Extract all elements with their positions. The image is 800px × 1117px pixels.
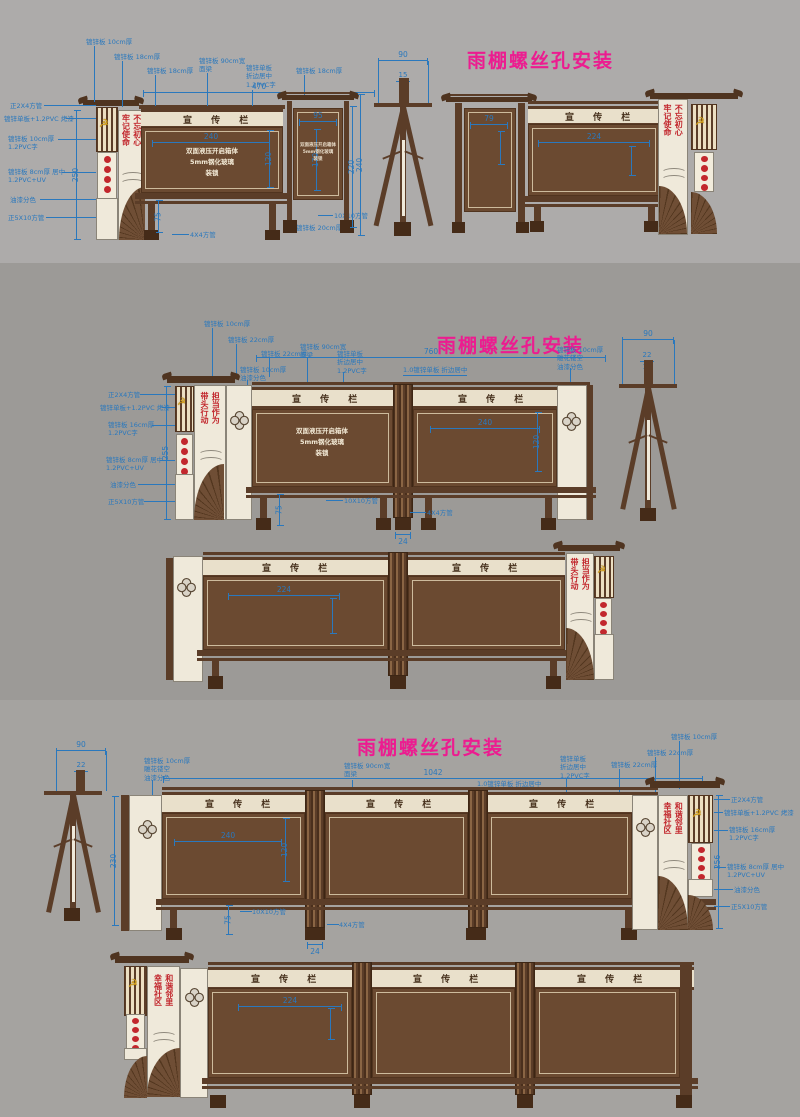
clover-icon [185,988,204,1007]
slogan-col-right: 担当作为 [581,558,590,590]
pillar-clover [129,795,162,931]
dim-extension [106,751,107,791]
board-header-text: 宣 传 栏 [251,972,324,985]
panel-inner-border [329,817,464,895]
pillar-striped [594,556,614,598]
leader-line [240,911,252,912]
leg [380,498,387,518]
board-header-text: 宣 传 栏 [183,113,256,126]
foot [354,1095,370,1108]
clover-icon [636,818,655,837]
slogan-col-right: 和谐邻里 [674,802,683,834]
label-material: 镀锌单板+1.2PVC 烤漆 [100,404,170,412]
board-panel [535,988,680,1078]
leader-line [410,512,426,513]
leader-line [714,889,733,890]
foot [166,928,182,940]
clover-icon [177,578,196,597]
label-material: 镀锌板 10cm厚 雕花镂空 油漆分色 [144,757,190,782]
leader-line [207,73,208,106]
foot [530,221,544,232]
leader-line [714,799,730,800]
seal-dot [104,176,111,183]
label-material: 油漆分色 [10,196,36,204]
label-material: 镀锌单板+1.2PVC 烤漆 [4,115,74,123]
seal-dot [104,186,111,193]
leader-line [307,357,308,382]
wave-decor [568,619,594,629]
dim-extension [428,61,429,103]
panel-inner-border [207,580,384,646]
foot [395,518,411,530]
foot [305,928,325,940]
bottom-rail [202,1078,698,1084]
dim-224: 224 [238,1006,342,1007]
pillar-striped [124,966,147,1016]
label-material: 镀锌单板 折边居中 1.2PVC字 [337,350,367,375]
foot [64,908,80,921]
foot [676,1095,692,1108]
panel-inner-border [376,992,511,1074]
label-material: 镀锌板 20cm厚 [296,224,342,232]
board-header-text: 宣 传 栏 [458,392,531,405]
divider-column [515,962,535,1095]
board-panel [487,813,632,899]
post [121,795,129,931]
leg [534,207,541,222]
foot [546,676,561,689]
leader-line [40,199,96,200]
board-header-text: 宣 传 栏 [565,110,638,123]
slogan-text: 带头行动 担当作为 [196,392,224,424]
dim-90: 90 [378,60,428,61]
foot [283,220,297,233]
leader-line [122,61,123,107]
leg [260,498,267,518]
box-spec-text-small: 双面液压开启箱体 5mm钢化玻璃 装锁 [297,142,339,164]
top-beam [162,787,658,790]
dim-255: 255 [166,386,167,520]
leg [269,204,276,230]
wave-decor [661,867,687,877]
leg [212,661,219,676]
label-material: 镀锌单板 折边居中 1.2PVC字 [560,755,590,780]
bottom-rail [135,193,289,199]
label-material: 4X4方管 [339,921,365,929]
dim-79: 79 [470,124,508,125]
dim-220: 220 [352,106,353,228]
label-material: 油漆分色 [734,886,760,894]
label-material: 镀锌板 90cm宽 面梁 [199,57,245,74]
label-material: 镀锌板 10cm厚 [204,320,250,328]
dim-24: 24 [395,534,411,535]
panel-inner-border [212,992,348,1074]
pillar-clover [557,385,587,520]
label-material: 正2X4方管 [10,102,42,110]
roof [167,376,235,383]
dim-1042: 1042 [163,778,703,779]
leader-line [62,172,96,173]
label-material: 正5X10方管 [8,214,44,222]
dim-240: 240 [174,841,282,842]
party-emblem-icon: ☭ [177,398,186,408]
seal-column [694,152,714,192]
label-material: 镀锌板 10cm厚 [671,733,717,741]
clover-icon [138,820,157,839]
label-material: 镀锌板 8cm厚 居中 1.2PVC+UV [8,168,65,185]
dim-line [500,131,501,165]
dim-120: 120 [269,130,270,188]
box-spec-text: 双面液压开启箱体 5mm钢化玻璃 装锁 [156,146,268,179]
slogan-col-right: 和谐邻里 [165,974,174,1006]
pillar-clover [173,556,203,682]
pillar-clover [632,795,658,930]
panel-inner-border [468,112,512,208]
leader-line [714,830,728,831]
seal-dot [698,865,705,871]
foot [210,1095,226,1108]
board-header-text: 宣 传 栏 [366,797,439,810]
seal-dot [181,438,188,445]
label-material: 镀锌板 18cm厚 [296,67,342,75]
foot [390,676,406,689]
dim-75: 75 [228,905,229,935]
seal-dot [132,1036,139,1042]
seal-dot [600,611,607,617]
foot [265,230,280,240]
dim-extension [622,340,623,384]
label-material: 镀锌板 22cm厚 [647,749,693,757]
bottom-rail [246,487,596,493]
roof [650,781,720,788]
dim-extension [674,340,675,384]
foot [256,518,271,530]
board-panel [408,576,565,650]
bottom-rail [197,650,573,656]
bottom-rail [523,196,665,202]
leader-line [343,372,344,382]
pillar-striped [175,386,194,432]
slogan-text: 带头行动 担当作为 [568,558,592,590]
dim-extension [56,751,57,791]
slogan-col-left: 带头行动 [570,558,579,590]
board-header-text: 宣 传 栏 [292,392,365,405]
seal-dot [701,165,708,172]
dim-line [330,1008,331,1040]
bottom-shelf [523,204,665,207]
dim-90: 90 [622,339,674,340]
party-emblem-icon: ☭ [597,566,606,576]
slogan-col-left: 带头行动 [200,392,209,424]
leader-line [144,501,175,502]
dim-120: 120 [285,818,286,882]
party-emblem-icon: ☭ [692,808,702,819]
board-header-text: 宣 传 栏 [577,972,650,985]
clover-icon [230,411,249,430]
leader-line [138,484,175,485]
seal-column [97,152,117,200]
panel-inner-border [412,580,561,646]
leader-line [327,924,339,925]
post [166,558,173,680]
roof [282,95,354,100]
dim-120: 120 [537,412,538,472]
seal-dot [698,856,705,862]
label-material: 镀锌板 18cm厚 [147,67,193,75]
label-material: 正5X10方管 [731,903,767,911]
top-beam [252,382,590,385]
board-header-text: 宣 传 栏 [529,797,602,810]
leg [550,661,557,676]
board-header-text: 宣 传 栏 [262,561,335,574]
pillar-clover [226,385,252,520]
leg [648,207,655,222]
seal-dot [132,1027,139,1033]
leg [170,910,177,928]
leader-line [236,344,237,377]
foot [541,518,556,530]
label-material: 正2X4方管 [731,796,763,804]
clover-icon [562,412,581,431]
seal-dot [698,847,705,853]
label-material: 镀锌板 16cm厚 1.2PVC字 [108,421,154,438]
dim-240: 240 [152,142,270,143]
foot [466,928,486,940]
slogan-text: 幸福社区 和谐邻里 [149,974,178,1006]
party-emblem-icon: ☭ [99,118,109,129]
leader-line [252,90,253,106]
slogan-text: 幸福社区 和谐邻里 [660,802,686,834]
slogan-text: 牢记使命 不忘初心 [660,104,686,136]
seal-dot [181,458,188,465]
label-material: 镀锌板 22cm厚 [611,761,657,769]
dim-95: 95 [299,121,337,122]
foot [517,1095,533,1108]
panel-inner-border [491,817,628,895]
dim-240: 240 [430,428,540,429]
roof [446,97,532,102]
dim-line [631,146,632,176]
dim-230: 230 [114,796,115,926]
dim-extension [378,61,379,103]
leader-line [66,118,96,119]
label-material: 镀锌板 8cm厚 居中 1.2PVC+UV [727,863,784,880]
slogan-col-left: 幸福社区 [153,974,162,1006]
dim-75: 75 [279,494,280,526]
slogan-col-left: 牢记使命 [121,114,130,146]
label-material: 10X10方管 [344,497,378,505]
leader-line [58,139,96,140]
leg [545,498,552,518]
label-material: 镀锌板 16cm厚 1.2PVC字 [729,826,775,843]
dim-250: 250 [76,110,77,240]
tripod-inner-pole [647,420,650,500]
roof-trim [450,94,528,96]
pillar-white [688,879,713,897]
post [455,103,462,223]
pillar-white [96,198,118,240]
pillar-white [175,474,194,520]
label-material: 镀锌板 8cm厚 居中 1.2PVC+UV [106,456,163,473]
panel-inner-border [539,992,676,1074]
seal-column [126,1014,145,1052]
foot [516,222,529,233]
leader-line [566,779,567,792]
label-material: 镀锌板 10cm厚 1.2PVC字 [8,135,54,152]
label-material: 镀锌板 90cm宽 面梁 [344,762,390,779]
seal-dot [104,156,111,163]
foot [421,518,436,530]
leader-line [155,75,156,106]
label-material: 4X4方管 [427,509,453,517]
seal-dot [701,184,708,191]
foot [640,508,656,521]
foot [208,676,223,689]
dim-75: 75 [158,200,159,233]
seal-dot [600,620,607,626]
foot [376,518,391,530]
section1-title: 雨棚螺丝孔安装 [467,46,614,73]
party-emblem-icon: ☭ [128,978,138,989]
label-material: 镀锌板 18cm厚 [114,53,160,61]
label-material: 镀锌板 10cm厚 雕花镂空 油漆分色 [557,346,603,371]
dim-24: 24 [307,944,323,945]
label-material: 1.0镀锌单板 折边居中 [403,366,467,374]
roof-trim [286,92,350,94]
leader-line [212,328,213,377]
foot [394,222,411,236]
leader-line [326,500,343,501]
post [287,101,292,221]
label-material: 镀锌板 10cm厚 [86,38,132,46]
board-panel [372,988,515,1078]
tripod-head [399,78,409,103]
leg [625,910,632,928]
bottom-shelf [246,495,596,498]
leader-line [403,375,467,376]
board-panel [325,813,468,899]
seal-dot [600,602,607,608]
slogan-col-left: 幸福社区 [663,802,672,834]
foot [452,222,465,233]
dim-256: 256 [718,795,719,929]
label-material: 镀锌单板 折边居中 1.2PVC字 [246,64,276,89]
leader-line [162,407,175,408]
label-material: 正2X4方管 [108,391,140,399]
seal-dot [104,166,111,173]
party-emblem-icon: ☭ [695,116,705,127]
dim-90: 90 [56,750,106,751]
label-material: 正5X10方管 [108,498,144,506]
roof [115,956,189,963]
dim-240-overall: 240 [360,94,361,236]
bottom-shelf [197,658,573,661]
label-material: 10X10方管 [252,908,286,916]
end-post [680,962,692,1095]
seal-dot [132,1018,139,1024]
board-header-text: 宣 传 栏 [413,972,486,985]
roof [558,545,620,551]
leader-line [44,105,96,106]
seal-column [595,598,612,636]
leader-line [172,234,189,235]
divider-column [352,962,372,1095]
label-material: 镀锌单板+1.2PVC 烤漆 [724,809,794,817]
section3-title: 雨棚螺丝孔安装 [357,733,504,760]
slogan-col-left: 牢记使命 [663,104,672,136]
leader-line [318,215,333,216]
dim-224: 224 [228,595,340,596]
label-material: 4X4方管 [190,231,216,239]
dim-224: 224 [538,142,650,143]
slogan-col-right: 不忘初心 [674,104,683,136]
seal-dot [701,175,708,182]
top-beam [203,552,565,555]
wave-decor [661,175,687,185]
pillar-white [594,634,614,680]
board-header-text: 宣 传 栏 [205,797,278,810]
slogan-col-right: 担当作为 [211,392,220,424]
leader-line [160,460,175,461]
foot [644,221,658,232]
blueprint-canvas: 雨棚螺丝孔安装 ☭ 牢记使命 不忘初心 宣 传 栏 双面液压开启箱体 5mm钢化… [0,0,800,1117]
top-beam [528,101,660,104]
top-beam [208,962,694,965]
leader-line [94,46,95,102]
seal-dot [701,156,708,163]
seal-column [691,843,711,881]
seal-column [176,434,193,476]
tripod-head [76,770,85,791]
tripod-head [644,360,653,384]
leader-line [46,217,96,218]
leader-line [152,425,175,426]
leader-line [714,867,726,868]
label-material: 油漆分色 [110,481,136,489]
leader-line [140,394,175,395]
bottom-shelf [202,1086,698,1089]
wave-decor [151,1039,177,1049]
box-spec-text: 双面液压开启箱体 5mm钢化玻璃 装锁 [262,426,382,459]
end-post [587,385,593,520]
board-panel [203,576,388,650]
leader-line [152,780,153,795]
label-material: 镀锌板 22cm厚 [228,336,274,344]
dim-line [332,598,333,634]
seal-dot [181,448,188,455]
leader-line [714,906,730,907]
board-header-text: 宣 传 栏 [452,561,525,574]
